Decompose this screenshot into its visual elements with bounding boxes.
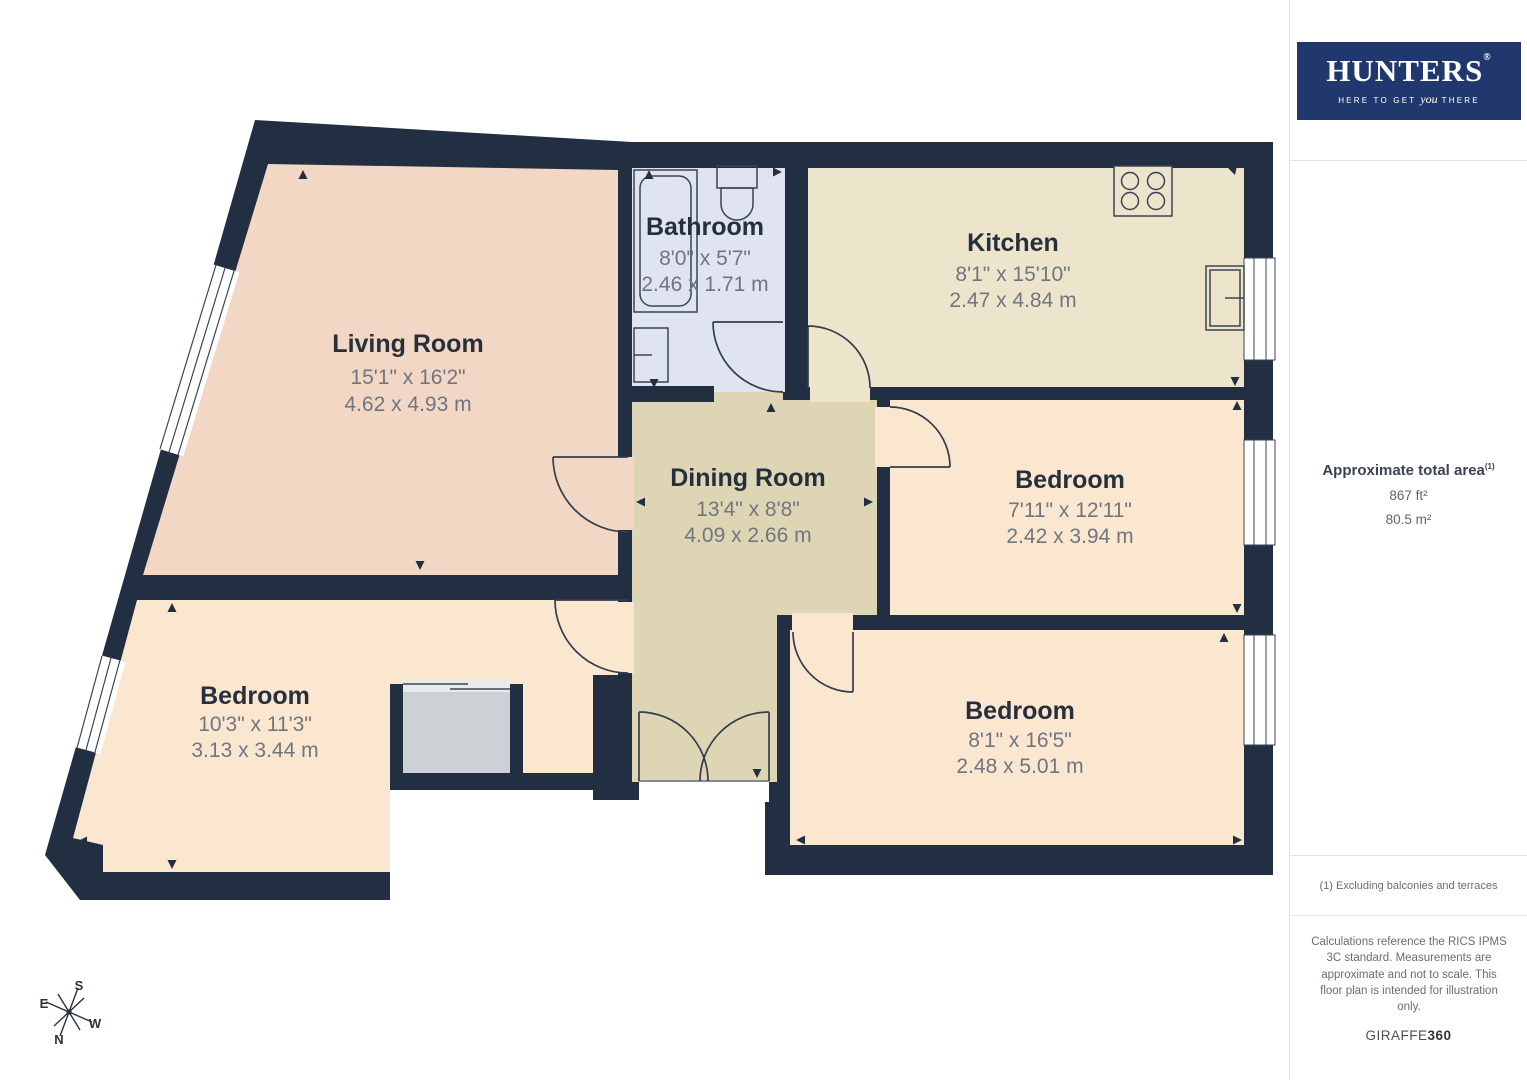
doorway-bedroom-right-bottom xyxy=(792,613,853,632)
svg-text:Bathroom: Bathroom xyxy=(646,213,764,241)
info-sidebar: HUNTERS® HERE TO GET you THERE Approxima… xyxy=(1289,0,1527,1080)
window-kitchen xyxy=(1244,258,1275,360)
svg-text:8'1" x 16'5": 8'1" x 16'5" xyxy=(968,729,1072,752)
floor-plan-svg: Living Room 15'1" x 16'2" 4.62 x 4.93 m … xyxy=(0,0,1289,1080)
total-area-block: Approximate total area(1) 867 ft² 80.5 m… xyxy=(1290,462,1527,527)
compass-icon: S E W N xyxy=(40,978,102,1047)
disclaimer-text: Calculations reference the RICS IPMS 3C … xyxy=(1309,934,1509,1016)
room-label-kitchen: Kitchen 8'1" x 15'10" 2.47 x 4.84 m xyxy=(949,229,1076,312)
room-label-bedroom-left: Bedroom 10'3" x 11'3" 3.13 x 3.44 m xyxy=(191,682,318,762)
svg-text:2.48 x 5.01 m: 2.48 x 5.01 m xyxy=(956,755,1083,778)
doorway-entrance xyxy=(639,780,769,802)
svg-text:S: S xyxy=(75,978,84,993)
doorway-living-dining xyxy=(616,457,634,530)
hunters-tagline: HERE TO GET you THERE xyxy=(1338,92,1480,107)
svg-text:4.62 x 4.93 m: 4.62 x 4.93 m xyxy=(344,393,471,416)
svg-text:2.47 x 4.84 m: 2.47 x 4.84 m xyxy=(949,289,1076,312)
svg-text:10'3" x 11'3": 10'3" x 11'3" xyxy=(198,713,312,736)
total-area-ft: 867 ft² xyxy=(1290,488,1527,503)
svg-text:Dining Room: Dining Room xyxy=(670,464,826,492)
svg-text:8'1" x 15'10": 8'1" x 15'10" xyxy=(955,263,1070,286)
wall-stub-bathroom xyxy=(632,386,714,402)
registered-mark-icon: ® xyxy=(1483,52,1491,63)
hunters-logo: HUNTERS® HERE TO GET you THERE xyxy=(1297,42,1521,120)
sidebar-divider-mid2 xyxy=(1290,915,1527,916)
stove-icon xyxy=(1114,166,1172,216)
svg-text:8'0" x 5'7": 8'0" x 5'7" xyxy=(659,247,751,270)
room-label-bedroom-right-bottom: Bedroom 8'1" x 16'5" 2.48 x 5.01 m xyxy=(956,697,1083,778)
svg-text:Living Room: Living Room xyxy=(332,330,483,358)
svg-text:2.42 x 3.94 m: 2.42 x 3.94 m xyxy=(1006,525,1133,548)
svg-text:Bedroom: Bedroom xyxy=(200,682,310,710)
floorplan-page: Living Room 15'1" x 16'2" 4.62 x 4.93 m … xyxy=(0,0,1527,1080)
svg-text:W: W xyxy=(89,1016,102,1031)
total-area-m: 80.5 m² xyxy=(1290,512,1527,527)
hunters-logo-text: HUNTERS® xyxy=(1326,55,1491,86)
svg-text:15'1" x 16'2": 15'1" x 16'2" xyxy=(350,366,465,389)
window-bedroom-right-bottom xyxy=(1244,635,1275,745)
doorway-bedroom-right-top xyxy=(875,407,892,467)
svg-text:Bedroom: Bedroom xyxy=(965,697,1075,725)
room-label-living-room: Living Room 15'1" x 16'2" 4.62 x 4.93 m xyxy=(332,330,483,416)
area-footnote: (1) Excluding balconies and terraces xyxy=(1290,856,1527,915)
svg-text:N: N xyxy=(54,1032,63,1047)
doorway-kitchen xyxy=(810,385,870,402)
doorway-bedroom-left xyxy=(616,602,634,673)
giraffe360-credit: GIRAFFE360 xyxy=(1290,1028,1527,1043)
total-area-title: Approximate total area(1) xyxy=(1290,462,1527,479)
svg-text:2.46 x 1.71 m: 2.46 x 1.71 m xyxy=(641,273,768,296)
svg-text:Kitchen: Kitchen xyxy=(967,229,1059,257)
svg-text:13'4" x 8'8": 13'4" x 8'8" xyxy=(696,498,800,521)
closet xyxy=(403,680,510,773)
room-label-bathroom: Bathroom 8'0" x 5'7" 2.46 x 1.71 m xyxy=(641,213,768,296)
svg-text:4.09 x 2.66 m: 4.09 x 2.66 m xyxy=(684,524,811,547)
window-bedroom-right-top xyxy=(1244,440,1275,545)
svg-text:E: E xyxy=(40,996,49,1011)
room-label-bedroom-right-top: Bedroom 7'11" x 12'11" 2.42 x 3.94 m xyxy=(1006,466,1133,548)
floor-plan-canvas: Living Room 15'1" x 16'2" 4.62 x 4.93 m … xyxy=(0,0,1289,1080)
svg-text:3.13 x 3.44 m: 3.13 x 3.44 m xyxy=(191,739,318,762)
floor-bedroom-left xyxy=(73,600,618,872)
svg-text:7'11" x 12'11": 7'11" x 12'11" xyxy=(1008,499,1132,522)
sidebar-divider-top xyxy=(1290,160,1527,161)
svg-text:Bedroom: Bedroom xyxy=(1015,466,1125,494)
